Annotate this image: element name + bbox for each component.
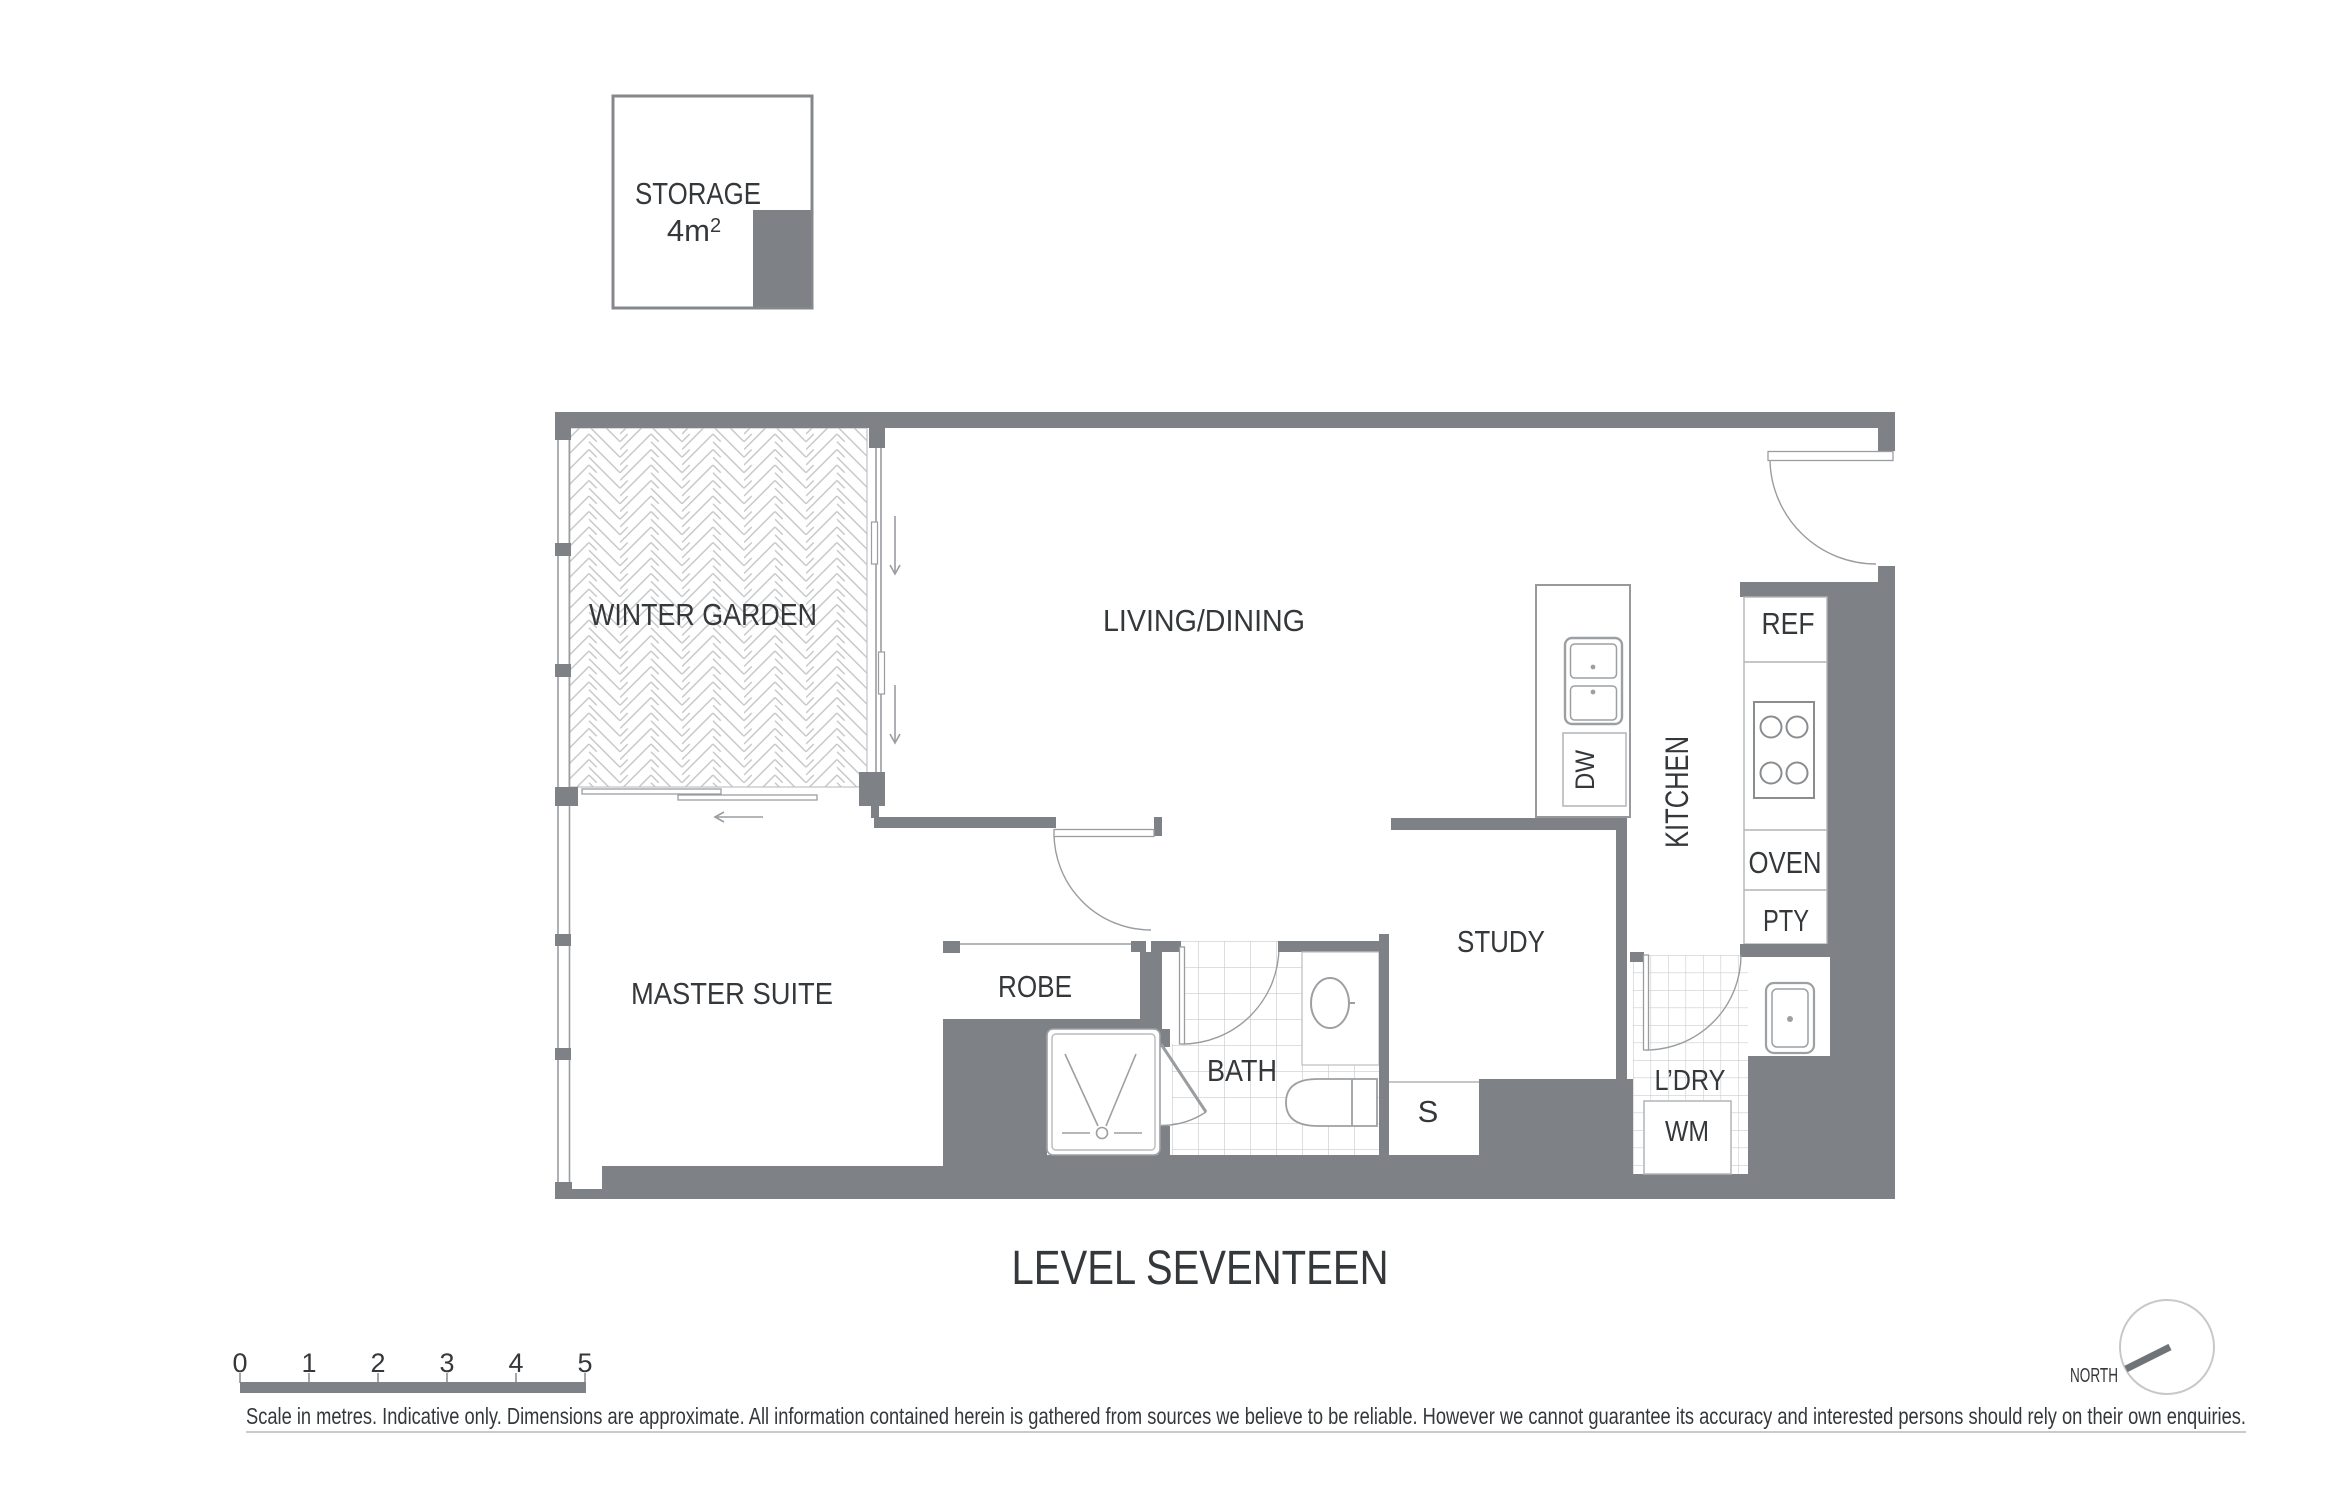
svg-text:LEVEL SEVENTEEN: LEVEL SEVENTEEN — [1012, 1242, 1389, 1295]
svg-text:ROBE: ROBE — [998, 969, 1072, 1004]
svg-text:KITCHEN: KITCHEN — [1659, 736, 1695, 848]
svg-text:PTY: PTY — [1763, 903, 1809, 938]
svg-text:OVEN: OVEN — [1749, 845, 1822, 880]
svg-text:STUDY: STUDY — [1457, 924, 1545, 959]
svg-text:REF: REF — [1762, 606, 1815, 641]
svg-text:DW: DW — [1570, 750, 1600, 790]
svg-text:STORAGE: STORAGE — [635, 176, 761, 211]
svg-text:Scale in metres. Indicative on: Scale in metres. Indicative only. Dimens… — [246, 1403, 2246, 1429]
svg-text:L’DRY: L’DRY — [1655, 1065, 1726, 1097]
svg-text:LIVING/DINING: LIVING/DINING — [1103, 603, 1305, 638]
svg-text:WINTER GARDEN: WINTER GARDEN — [589, 597, 817, 632]
svg-text:WM: WM — [1665, 1116, 1709, 1148]
svg-text:NORTH: NORTH — [2070, 1365, 2118, 1387]
svg-text:MASTER SUITE: MASTER SUITE — [631, 976, 833, 1011]
svg-text:BATH: BATH — [1207, 1053, 1277, 1088]
svg-text:S: S — [1418, 1094, 1439, 1129]
